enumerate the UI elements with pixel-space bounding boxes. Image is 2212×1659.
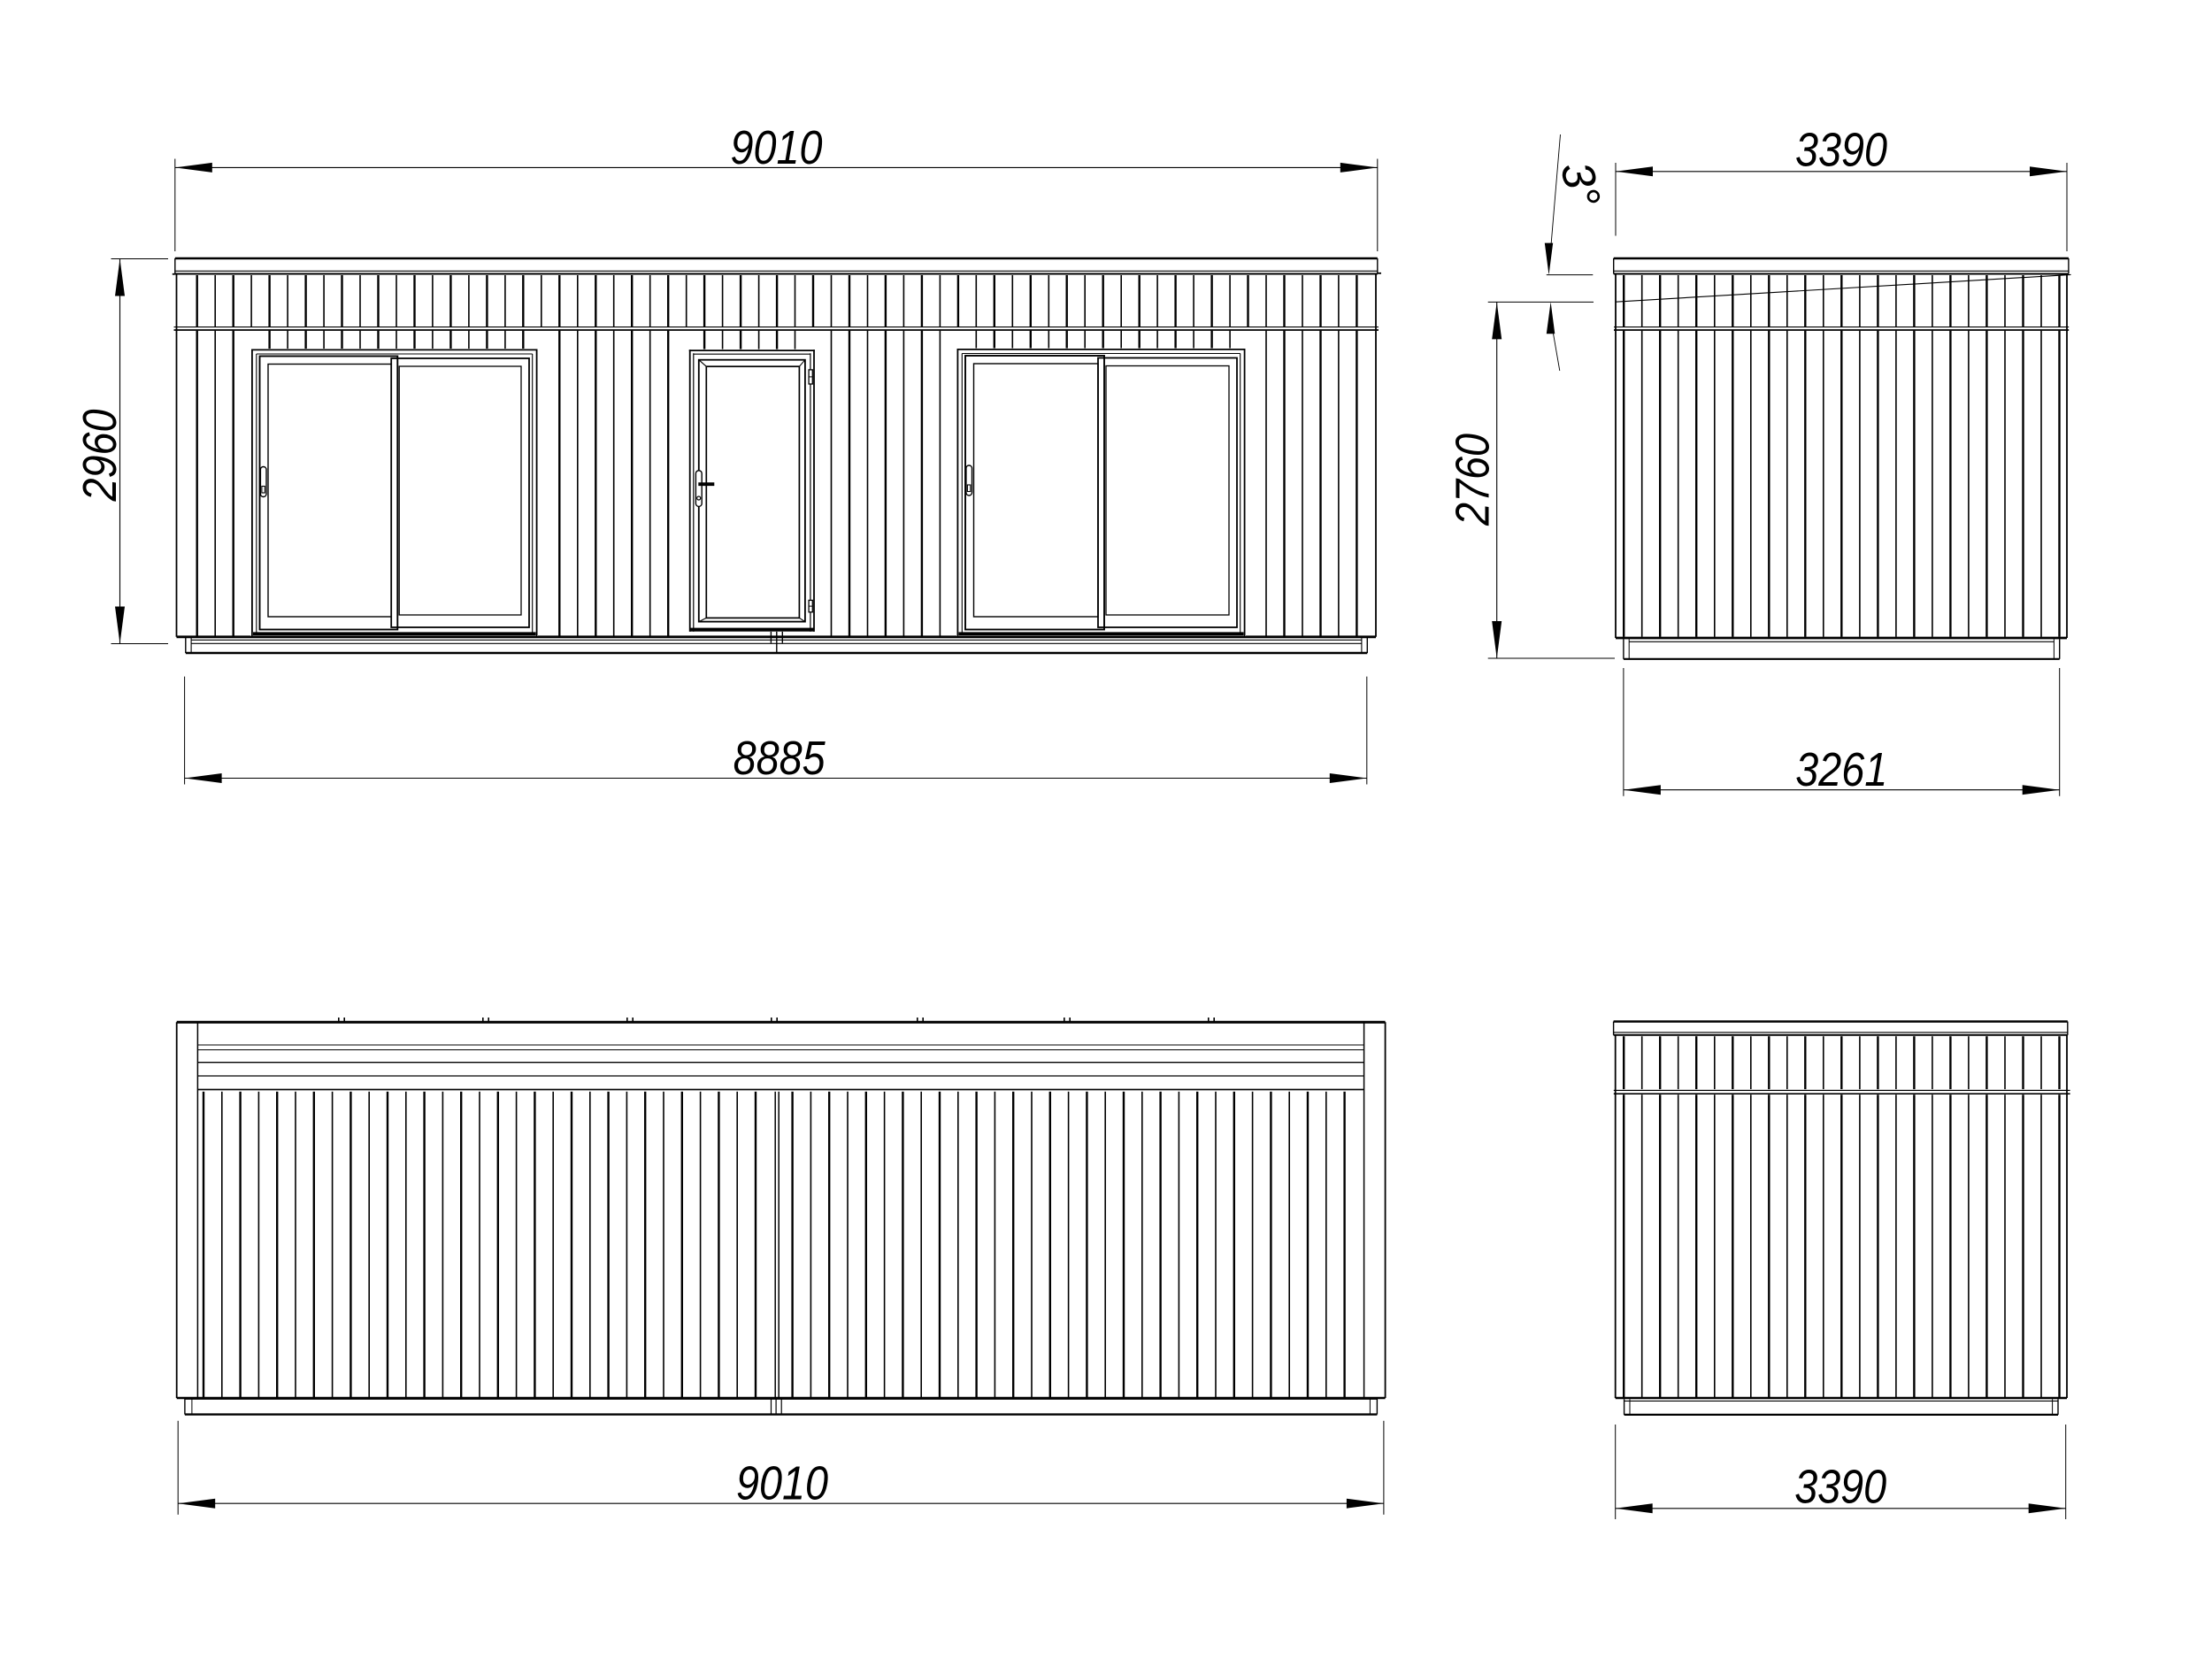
svg-text:9010: 9010 [736, 1456, 828, 1509]
svg-text:8885: 8885 [733, 732, 826, 785]
svg-text:9010: 9010 [731, 121, 823, 174]
svg-text:3261: 3261 [1795, 743, 1887, 796]
svg-text:2760: 2760 [1447, 434, 1500, 526]
svg-text:3390: 3390 [1795, 124, 1887, 177]
svg-text:2960: 2960 [73, 410, 127, 503]
svg-text:3390: 3390 [1794, 1461, 1886, 1514]
